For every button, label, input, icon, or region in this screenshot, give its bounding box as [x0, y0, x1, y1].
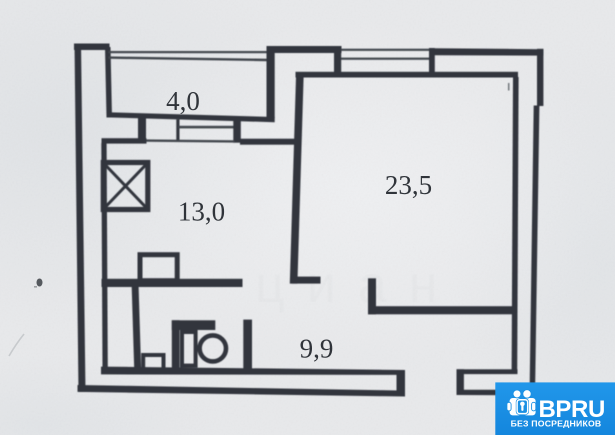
svg-text:23,5: 23,5	[385, 170, 432, 200]
svg-text:9,9: 9,9	[300, 334, 334, 364]
svg-text:13,0: 13,0	[178, 197, 225, 227]
svg-text:БЕЗ ПОСРЕДНИКОВ: БЕЗ ПОСРЕДНИКОВ	[511, 418, 602, 428]
svg-text:циан: циан	[255, 256, 459, 314]
svg-text:4,0: 4,0	[166, 86, 200, 116]
